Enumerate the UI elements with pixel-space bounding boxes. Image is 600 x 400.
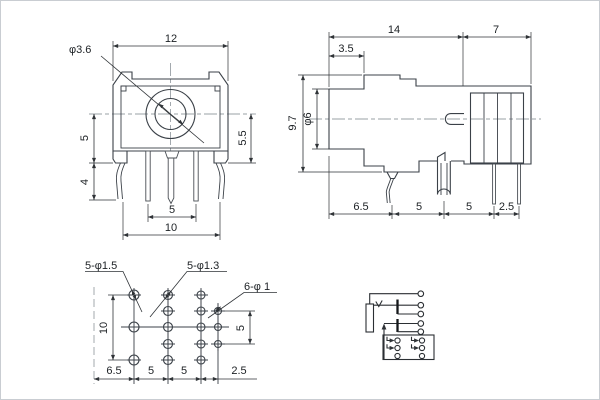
side-bent-pin — [386, 179, 393, 204]
dim-side-p3: 5 — [466, 201, 472, 213]
dim-side-p1: 6.5 — [353, 201, 368, 213]
schematic-box-terminal-1 — [395, 338, 400, 343]
front-inner-corner-right — [215, 86, 220, 91]
dim-side-p2: 5 — [416, 201, 422, 213]
dim-footprint-p1: 6.5 — [106, 365, 121, 377]
footprint-hole-ticks — [127, 288, 225, 367]
technical-drawing-sheet: 12 φ3.6 5 4 5.5 5 10 — [0, 0, 600, 400]
dim-side-p4: 2.5 — [499, 201, 514, 213]
drawing-canvas: 12 φ3.6 5 4 5.5 5 10 — [1, 1, 599, 399]
label-holes-mid: 5-φ1.3 — [187, 260, 219, 272]
front-dia-arrow-b — [171, 114, 183, 124]
schematic-box-terminal-2 — [419, 338, 424, 343]
front-pin-left — [146, 151, 150, 201]
dim-front-pin-pitch: 5 — [169, 204, 175, 216]
front-view: 12 φ3.6 5 4 5.5 5 10 — [69, 33, 256, 240]
schematic-terminal-4 — [418, 321, 424, 327]
dim-front-right-height: 5.5 — [237, 130, 249, 145]
schematic-terminal-1 — [418, 291, 424, 297]
schematic-box-terminal-4 — [419, 345, 424, 350]
dim-footprint-p3: 5 — [181, 365, 187, 377]
footprint-column-lines — [134, 289, 218, 384]
side-rear-block-inner — [471, 93, 524, 163]
side-lug-pin-inner — [441, 163, 447, 195]
side-bent-pin-tab — [387, 172, 398, 179]
front-left-extensions — [89, 163, 116, 200]
dim-footprint-p4: 2.5 — [231, 365, 246, 377]
front-right-foot — [214, 151, 228, 163]
dim-front-hole-dia: φ3.6 — [69, 44, 91, 56]
side-lug-pin — [438, 161, 451, 195]
front-right-bent-pin — [216, 163, 225, 199]
footprint-vert-extensions — [108, 295, 255, 360]
contact-arrow-3 — [390, 346, 395, 350]
side-view: 14 7 3.5 9.7 φ6 6.5 5 5 2.5 — [287, 24, 541, 219]
contact-arrow-2 — [414, 338, 419, 342]
dim-front-left-lower: 4 — [79, 179, 91, 185]
label-holes-large: 5-φ1.5 — [85, 260, 117, 272]
schematic-box-terminal-6 — [419, 353, 424, 358]
dim-front-pin-span: 10 — [165, 222, 177, 234]
front-center-pin-collar — [165, 151, 179, 158]
front-center-pin — [168, 158, 174, 204]
schematic-terminal-3 — [418, 311, 424, 317]
label-holes-small: 6-φ 1 — [244, 281, 270, 293]
side-rear-pin-1 — [493, 164, 496, 204]
front-pin-right — [194, 151, 198, 201]
side-rear-block-dividers — [484, 93, 511, 163]
schematic-box-terminal-5 — [395, 353, 400, 358]
schematic-up-arrow — [382, 324, 387, 330]
schematic-plug-barrel — [366, 304, 374, 332]
dim-side-barrel-dia: φ6 — [302, 112, 314, 125]
dim-footprint-colspan: 10 — [98, 322, 110, 334]
schematic-box-terminal-3 — [395, 345, 400, 350]
schematic-terminal-2 — [418, 302, 424, 308]
wiring-schematic — [366, 291, 434, 360]
dim-side-rear: 7 — [493, 24, 499, 36]
pcb-footprint: 5-φ1.5 5-φ1.3 6-φ 1 10 5 6.5 5 5 2.5 — [85, 260, 277, 384]
contact-arrow-1 — [390, 338, 395, 342]
front-dia-arrow-a — [159, 104, 170, 114]
dim-front-left-upper: 5 — [79, 135, 91, 141]
leader-holes-mid — [150, 272, 227, 318]
front-inner-corner-left — [121, 86, 126, 91]
dim-side-height: 9.7 — [287, 115, 299, 130]
contact-arrow-4 — [414, 346, 419, 350]
front-left-bent-pin — [116, 163, 125, 199]
side-body-outline — [329, 75, 531, 172]
dim-side-step: 3.5 — [338, 43, 353, 55]
schematic-terminal-5 — [418, 329, 424, 335]
dim-footprint-p2: 5 — [148, 365, 154, 377]
contact-leads — [387, 337, 415, 348]
side-rear-pin-2 — [518, 164, 521, 204]
front-left-foot — [113, 151, 127, 163]
dim-side-len: 14 — [388, 24, 400, 36]
schematic-contact-arrows — [387, 337, 419, 350]
side-lug-point — [438, 153, 446, 162]
dim-front-width: 12 — [165, 33, 177, 45]
side-top-extensions — [329, 32, 531, 87]
dim-footprint-rowhalf: 5 — [235, 325, 247, 331]
